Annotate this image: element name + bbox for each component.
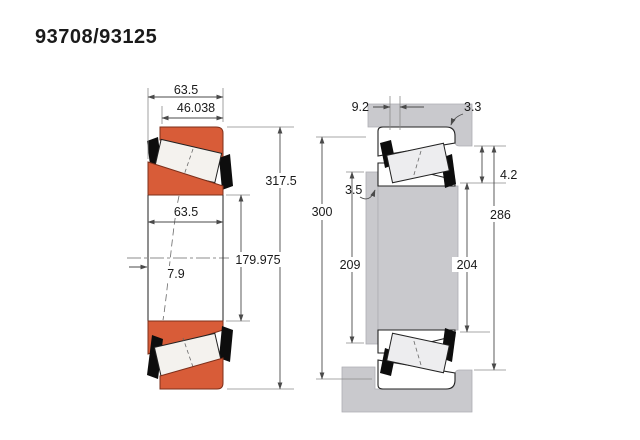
dim-bore-diameter: 179.975: [235, 253, 280, 267]
drawing-title: 93708/93125: [35, 26, 157, 48]
dim-total-width: 63.5: [174, 83, 198, 97]
dim-cup-width: 46.038: [177, 101, 215, 115]
shaft-shoulder: [366, 172, 378, 344]
bearing-drawing: 63.5 46.038 317.5 63.5 179.975 7.9: [0, 0, 640, 440]
dim-load-center-offset: 7.9: [167, 267, 184, 281]
dim-outer-diameter: 317.5: [265, 174, 296, 188]
dim-housing-fillet-radius: 3.3: [464, 100, 481, 114]
shaft: [378, 186, 458, 330]
dim-shaft-shoulder-diameter: 209: [340, 258, 361, 272]
dim-shaft-fillet-radius: 3.5: [345, 183, 362, 197]
dim-cone-width: 63.5: [174, 205, 198, 219]
dim-front-cage-clearance: 9.2: [352, 100, 369, 114]
technical-drawing-page: 63.5 46.038 317.5 63.5 179.975 7.9: [0, 0, 640, 440]
dim-cone-rib-diameter: 204: [457, 258, 478, 272]
dim-housing-backing-diameter: 286: [490, 208, 511, 222]
dim-back-cage-clearance: 4.2: [500, 168, 517, 182]
dim-housing-shoulder-diameter: 300: [312, 205, 333, 219]
